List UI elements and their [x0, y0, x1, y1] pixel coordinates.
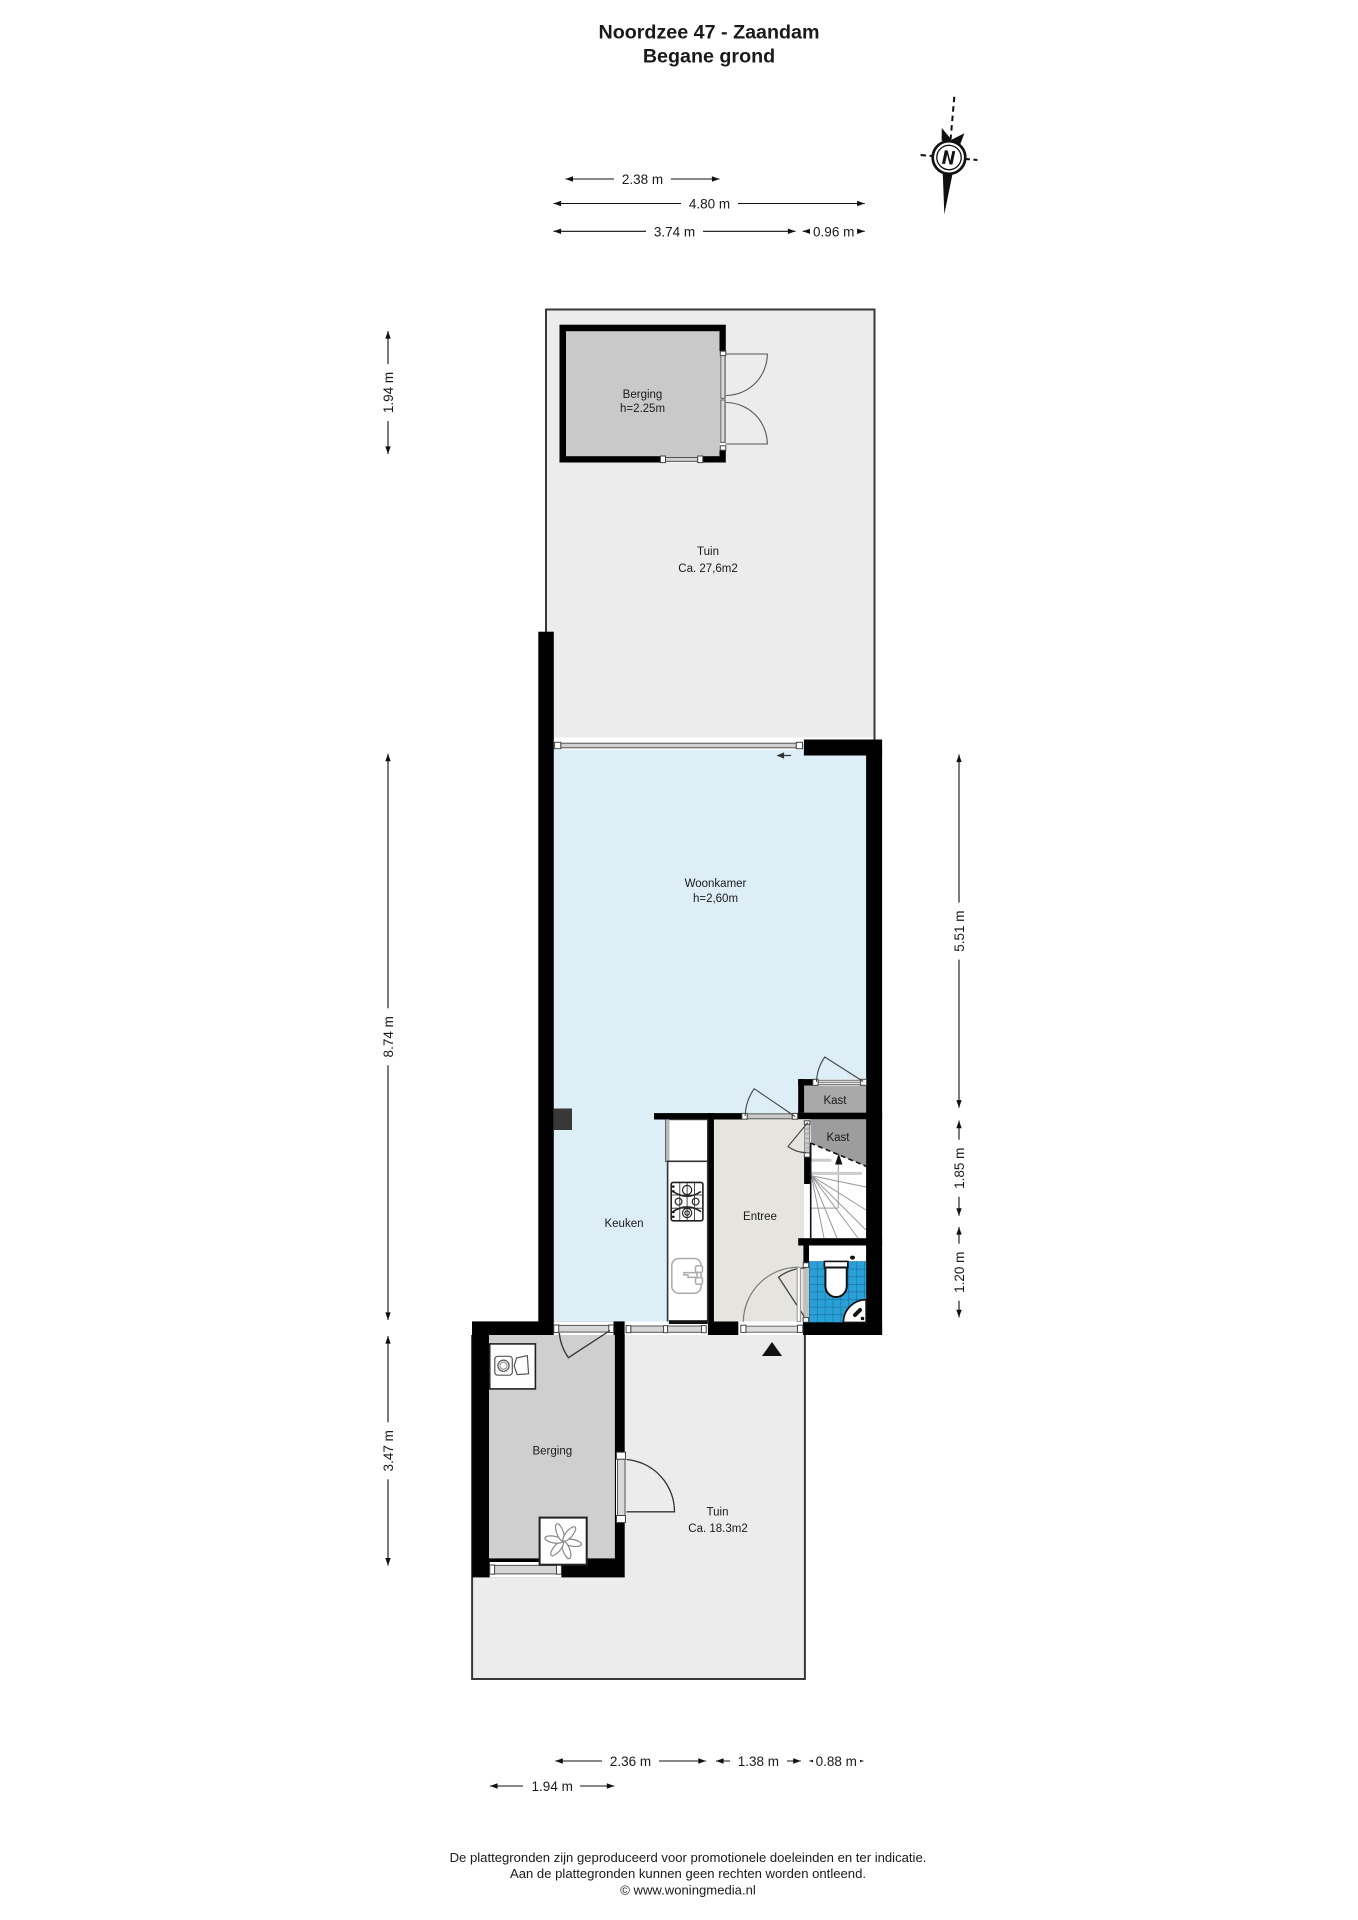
- svg-text:1.38 m: 1.38 m: [738, 1754, 779, 1769]
- svg-text:Keuken: Keuken: [604, 1218, 643, 1230]
- svg-text:Ca. 18.3m2: Ca. 18.3m2: [688, 1523, 747, 1535]
- svg-text:2.36 m: 2.36 m: [610, 1754, 651, 1769]
- svg-text:Ca. 27,6m2: Ca. 27,6m2: [678, 563, 737, 575]
- svg-text:3.74 m: 3.74 m: [654, 224, 695, 239]
- svg-text:Berging: Berging: [623, 389, 663, 401]
- svg-text:4.80 m: 4.80 m: [689, 197, 730, 212]
- svg-text:Berging: Berging: [532, 1446, 572, 1458]
- svg-text:3.47 m: 3.47 m: [381, 1430, 396, 1471]
- svg-text:Tuin: Tuin: [697, 546, 719, 558]
- svg-text:1.85 m: 1.85 m: [952, 1148, 967, 1189]
- svg-text:1.94 m: 1.94 m: [532, 1779, 573, 1794]
- svg-text:5.51 m: 5.51 m: [952, 910, 967, 951]
- svg-text:De plattegronden zijn geproduc: De plattegronden zijn geproduceerd voor …: [450, 1850, 927, 1865]
- svg-text:Entree: Entree: [743, 1211, 777, 1223]
- svg-text:Woonkamer: Woonkamer: [685, 878, 747, 890]
- svg-text:h=2.25m: h=2.25m: [620, 403, 665, 415]
- svg-text:Aan de plattegronden kunnen ge: Aan de plattegronden kunnen geen rechten…: [510, 1866, 866, 1881]
- svg-text:8.74 m: 8.74 m: [381, 1016, 396, 1057]
- svg-text:2.38 m: 2.38 m: [622, 172, 663, 187]
- svg-text:© www.woningmedia.nl: © www.woningmedia.nl: [620, 1882, 756, 1897]
- svg-text:1.20 m: 1.20 m: [952, 1252, 967, 1293]
- svg-text:0.96 m: 0.96 m: [813, 224, 854, 239]
- svg-text:h=2,60m: h=2,60m: [693, 893, 738, 905]
- svg-text:Kast: Kast: [826, 1132, 850, 1144]
- svg-text:Tuin: Tuin: [707, 1507, 729, 1519]
- svg-text:Begane grond: Begane grond: [643, 46, 775, 68]
- svg-text:0.88 m: 0.88 m: [816, 1754, 857, 1769]
- svg-text:Kast: Kast: [823, 1095, 847, 1107]
- svg-text:Noordzee 47 - Zaandam: Noordzee 47 - Zaandam: [599, 22, 820, 44]
- svg-text:1.94 m: 1.94 m: [381, 372, 396, 413]
